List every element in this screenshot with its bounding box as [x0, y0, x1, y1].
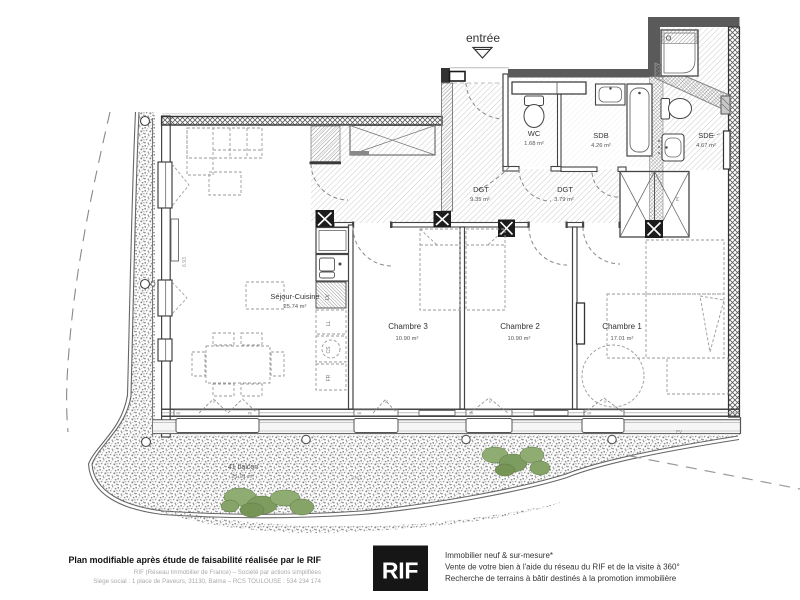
svg-text:Vente de votre bien à l'aide d: Vente de votre bien à l'aide du réseau d…: [445, 563, 680, 572]
svg-text:17.01 m²: 17.01 m²: [611, 336, 634, 342]
svg-text:4.26 m²: 4.26 m²: [591, 143, 611, 149]
svg-text:21.91 m²: 21.91 m²: [232, 474, 255, 480]
svg-text:SDB: SDB: [593, 131, 608, 140]
svg-text:Séjour-Cuisine: Séjour-Cuisine: [270, 292, 319, 301]
svg-text:4.40: 4.40: [352, 475, 362, 481]
svg-text:41 balcon: 41 balcon: [228, 464, 258, 471]
svg-text:VR: VR: [357, 412, 362, 416]
svg-text:Plan modifiable après étude de: Plan modifiable après étude de faisabili…: [68, 555, 321, 565]
svg-text:DGT: DGT: [557, 185, 573, 194]
svg-text:Recherche de terrains à bâtir: Recherche de terrains à bâtir destinés à…: [445, 574, 677, 583]
svg-text:Immobilier neuf & sur-mesure*: Immobilier neuf & sur-mesure*: [445, 551, 553, 560]
svg-text:FR: FR: [326, 374, 332, 381]
svg-text:PE: PE: [248, 412, 252, 416]
svg-text:Chambre 3: Chambre 3: [388, 322, 428, 331]
svg-text:9.35 m²: 9.35 m²: [470, 197, 490, 203]
svg-text:CS: CS: [326, 346, 332, 354]
svg-text:4.67 m²: 4.67 m²: [696, 143, 716, 149]
svg-text:LL: LL: [326, 321, 332, 327]
svg-text:10.90 m²: 10.90 m²: [396, 336, 419, 342]
svg-text:1.68 m²: 1.68 m²: [524, 141, 544, 147]
svg-text:Chambre 2: Chambre 2: [500, 322, 540, 331]
svg-text:SDE: SDE: [698, 131, 713, 140]
svg-text:6.93: 6.93: [182, 257, 188, 267]
svg-text:Pl: Pl: [675, 197, 680, 201]
svg-text:LV: LV: [325, 293, 331, 299]
svg-text:RIF (Réseau Immobilier de Fran: RIF (Réseau Immobilier de France) – Soci…: [134, 569, 321, 576]
svg-text:Chambre 1: Chambre 1: [602, 322, 642, 331]
svg-text:10.90 m²: 10.90 m²: [508, 336, 531, 342]
svg-text:WC: WC: [528, 129, 541, 138]
svg-text:entrée: entrée: [466, 31, 500, 45]
svg-text:3.79 m²: 3.79 m²: [554, 197, 574, 203]
svg-text:25.74 m²: 25.74 m²: [284, 304, 307, 310]
svg-text:VR: VR: [176, 412, 181, 416]
svg-text:RIF: RIF: [382, 558, 418, 584]
svg-text:VR: VR: [587, 412, 592, 416]
svg-text:DGT: DGT: [473, 185, 489, 194]
svg-text:Siège social : 1 place de Pave: Siège social : 1 place de Paveurs, 31130…: [93, 578, 321, 585]
svg-text:PV: PV: [676, 429, 682, 434]
